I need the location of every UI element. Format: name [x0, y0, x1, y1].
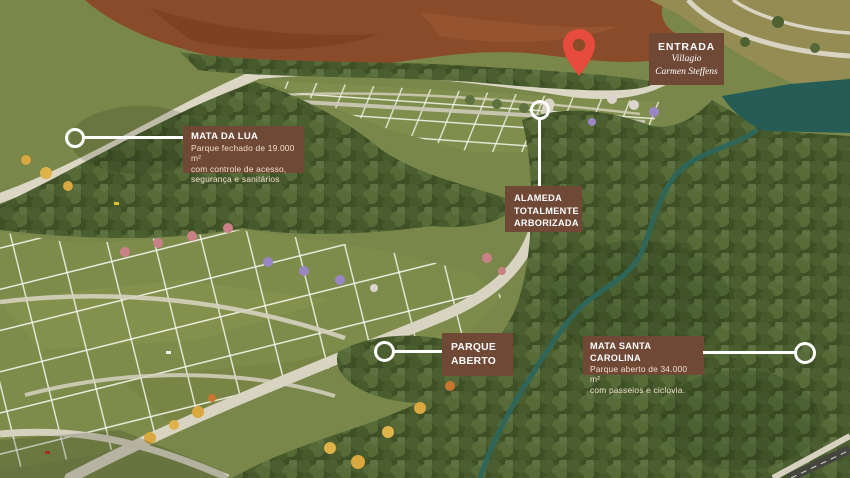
- mata-santa-carolina-desc-line2: com passeios e ciclovia.: [590, 385, 697, 395]
- parque-aberto-connector-line: [394, 350, 442, 353]
- parque-aberto-marker-circle[interactable]: [374, 341, 395, 362]
- alameda-title-line3: ARBORIZADA: [514, 217, 582, 230]
- location-pin-icon[interactable]: [562, 29, 596, 76]
- alameda-title-line2: TOTALMENTE: [514, 205, 582, 218]
- mata-da-lua-callout: MATA DA LUA Parque fechado de 19.000 m² …: [183, 126, 304, 173]
- mata-santa-carolina-connector-line: [703, 351, 795, 354]
- mata-da-lua-desc-line3: segurança e sanitários: [191, 174, 296, 184]
- mata-da-lua-desc-line2: com controle de acesso,: [191, 164, 296, 174]
- parque-aberto-title-line1: PARQUE: [451, 341, 513, 355]
- mata-santa-carolina-callout: MATA SANTA CAROLINA Parque aberto de 34.…: [583, 336, 704, 375]
- project-name-line2: Carmen Steffens: [649, 67, 724, 79]
- alameda-callout: ALAMEDA TOTALMENTE ARBORIZADA: [505, 186, 582, 232]
- mata-santa-carolina-marker-circle[interactable]: [794, 342, 816, 364]
- entrada-callout: ENTRADA Villagio Carmen Steffens: [649, 33, 724, 85]
- entrada-label: ENTRADA: [649, 41, 724, 53]
- mata-da-lua-desc-line1: Parque fechado de 19.000 m²: [191, 143, 296, 164]
- alameda-connector-line: [538, 119, 541, 186]
- alameda-title-line1: ALAMEDA: [514, 192, 582, 205]
- mata-da-lua-title: MATA DA LUA: [191, 131, 296, 143]
- mata-da-lua-marker-circle[interactable]: [65, 128, 85, 148]
- masterplan-view: ENTRADA Villagio Carmen Steffens MATA DA…: [0, 0, 850, 478]
- project-name-line1: Villagio: [649, 54, 724, 66]
- alameda-marker-circle[interactable]: [530, 100, 550, 120]
- mata-santa-carolina-desc-line1: Parque aberto de 34.000 m²: [590, 364, 697, 385]
- mata-santa-carolina-title: MATA SANTA CAROLINA: [590, 340, 697, 364]
- mata-da-lua-connector-line: [83, 136, 183, 139]
- parque-aberto-title-line2: ABERTO: [451, 355, 513, 369]
- parque-aberto-callout: PARQUE ABERTO: [442, 333, 513, 376]
